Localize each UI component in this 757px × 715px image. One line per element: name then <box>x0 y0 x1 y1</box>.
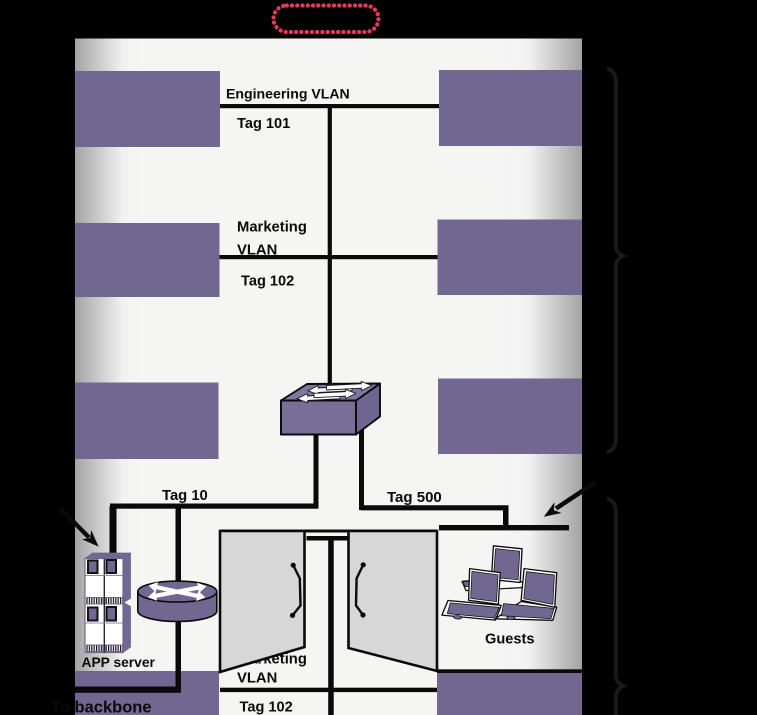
svg-text:Tag 10: Tag 10 <box>162 488 208 504</box>
svg-text:Tag 101: Tag 101 <box>237 116 290 132</box>
svg-text:Tag 500: Tag 500 <box>387 489 442 506</box>
svg-text:Marketing: Marketing <box>237 219 307 235</box>
svg-text:VLAN: VLAN <box>237 242 277 258</box>
svg-text:Tag 102: Tag 102 <box>241 273 294 289</box>
svg-text:To backbone: To backbone <box>51 699 152 715</box>
svg-text:APP server: APP server <box>82 655 156 670</box>
svg-text:Tag 102: Tag 102 <box>240 700 293 715</box>
svg-text:Engineering VLAN: Engineering VLAN <box>226 85 350 101</box>
svg-text:VLAN: VLAN <box>237 671 277 687</box>
svg-text:Guests: Guests <box>485 632 534 648</box>
